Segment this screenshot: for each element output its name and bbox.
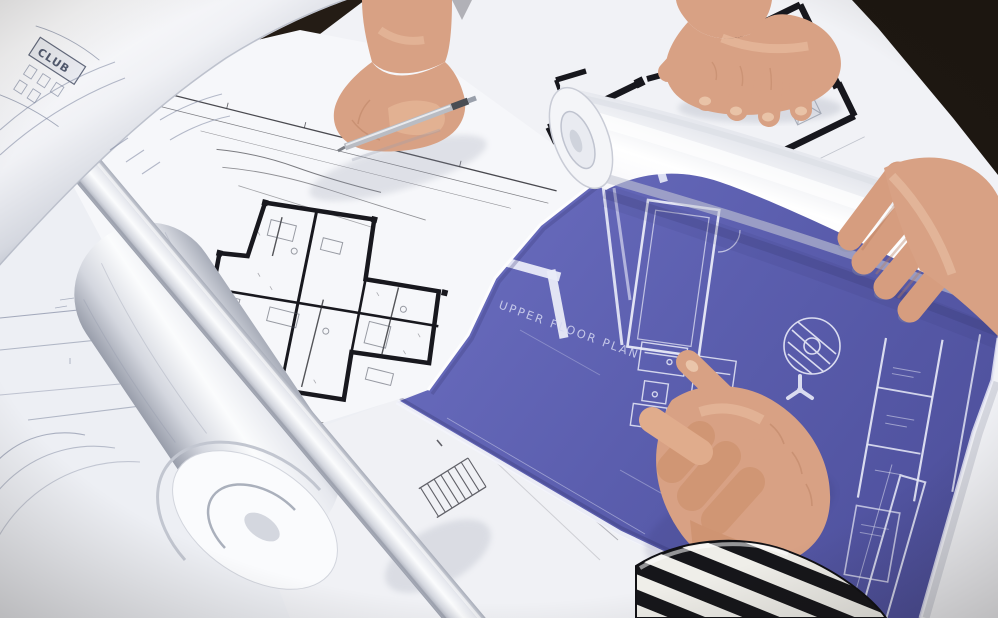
vignette-overlay — [0, 0, 998, 618]
scene-canvas: UPPER FLOOR PLAN — [0, 0, 998, 618]
blueprint-photo-scene: UPPER FLOOR PLAN — [0, 0, 998, 618]
